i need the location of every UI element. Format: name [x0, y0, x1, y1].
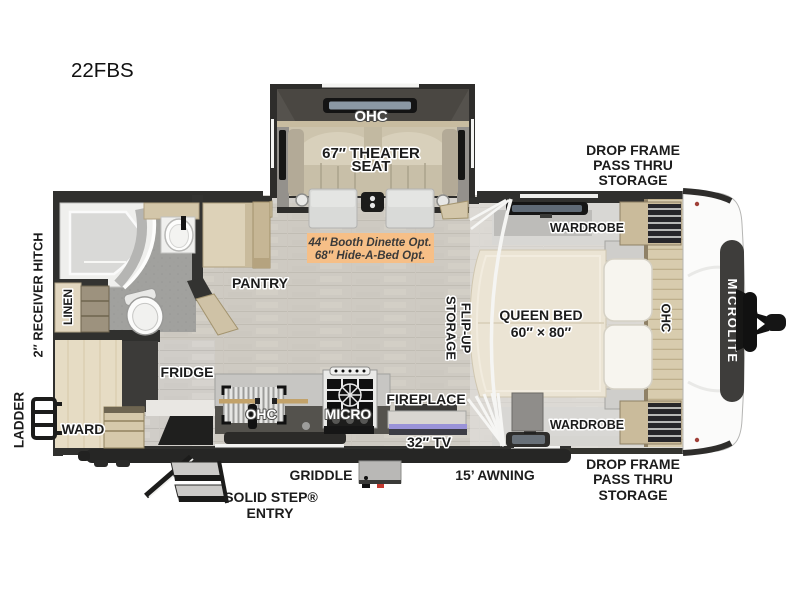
svg-text:LINEN: LINEN: [61, 289, 75, 325]
svg-text:DROP FRAME: DROP FRAME: [586, 456, 680, 472]
svg-text:MICRO: MICRO: [325, 406, 372, 422]
svg-text:68″ Hide-A-Bed Opt.: 68″ Hide-A-Bed Opt.: [315, 250, 425, 262]
svg-text:22FBS: 22FBS: [71, 59, 134, 82]
svg-text:PASS THRU: PASS THRU: [593, 471, 673, 487]
svg-text:32″ TV: 32″ TV: [407, 434, 452, 450]
svg-text:QUEEN BED: QUEEN BED: [499, 307, 582, 323]
svg-text:STORAGE: STORAGE: [599, 487, 668, 503]
svg-text:FIREPLACE: FIREPLACE: [386, 391, 465, 407]
svg-text:STORAGE: STORAGE: [444, 296, 459, 360]
svg-text:STORAGE: STORAGE: [599, 172, 668, 188]
svg-text:LADDER: LADDER: [12, 392, 27, 448]
svg-text:OHC: OHC: [354, 108, 388, 125]
svg-text:FRIDGE: FRIDGE: [161, 364, 214, 380]
svg-text:SOLID STEP®: SOLID STEP®: [224, 489, 318, 505]
svg-text:PASS THRU: PASS THRU: [593, 157, 673, 173]
svg-text:2″ RECEIVER HITCH: 2″ RECEIVER HITCH: [31, 233, 46, 358]
svg-text:OHC: OHC: [659, 304, 674, 334]
svg-text:15’ AWNING: 15’ AWNING: [455, 467, 535, 483]
svg-text:GRIDDLE: GRIDDLE: [290, 467, 353, 483]
svg-text:DROP FRAME: DROP FRAME: [586, 142, 680, 158]
svg-text:60″ × 80″: 60″ × 80″: [511, 324, 572, 340]
svg-text:SEAT: SEAT: [352, 158, 391, 175]
svg-text:OHC: OHC: [245, 406, 276, 422]
svg-text:WARDROBE: WARDROBE: [550, 221, 624, 235]
svg-text:WARD: WARD: [62, 421, 105, 437]
svg-text:FLIP-UP: FLIP-UP: [459, 303, 474, 354]
svg-text:WARDROBE: WARDROBE: [550, 418, 624, 432]
svg-text:44″ Booth Dinette Opt.: 44″ Booth Dinette Opt.: [307, 237, 431, 249]
svg-text:PANTRY: PANTRY: [232, 275, 289, 291]
svg-text:ENTRY: ENTRY: [247, 505, 295, 521]
